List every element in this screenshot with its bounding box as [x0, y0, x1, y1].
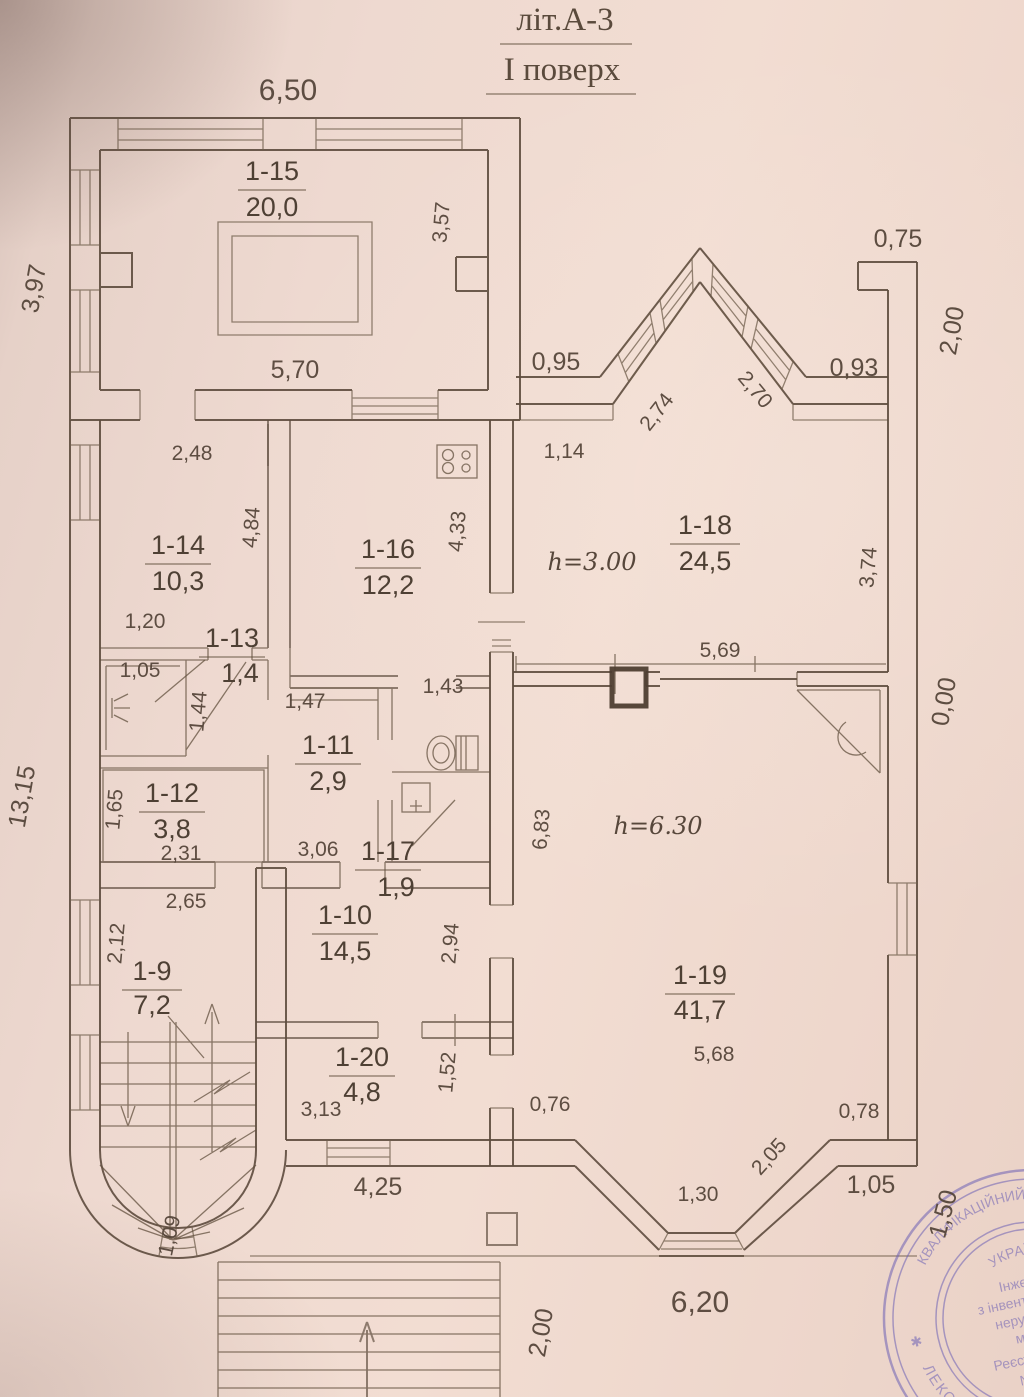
dim-r12-width: 2,31 — [161, 842, 202, 865]
toilet-icon — [427, 736, 478, 770]
dim-r14-width: 2,48 — [172, 442, 213, 465]
stairs-up-arrow — [205, 1004, 219, 1152]
room-1-17-leader — [412, 800, 455, 846]
room-1-20-area: 4,8 — [343, 1077, 381, 1107]
dim-ledge-right: 0,93 — [830, 354, 879, 382]
room-1-16-id: 1-16 — [361, 534, 415, 564]
dim-stair-window: 1,09 — [154, 1213, 185, 1258]
room-1-15-area: 20,0 — [246, 192, 299, 222]
room-1-12-id: 1-12 — [145, 778, 199, 808]
room-1-17-area: 1,9 — [377, 872, 415, 902]
dim-parapet: 0,75 — [874, 225, 923, 253]
dim-bay-low-diag: 2,05 — [747, 1134, 791, 1180]
wall-bottom-1-20 — [286, 1140, 513, 1166]
room-1-14-area: 10,3 — [152, 566, 205, 596]
room-1-13-area: 1,4 — [221, 658, 259, 688]
dim-r17-offset: 3,06 — [298, 838, 339, 861]
corner-triangle-marker — [797, 690, 880, 773]
dim-closet-inner: 1,05 — [120, 659, 161, 682]
dim-bay-low-window: 1,30 — [678, 1183, 719, 1206]
boiler-icon — [402, 783, 430, 812]
dim-left-total: 13,15 — [3, 763, 41, 829]
room-1-14-id: 1-14 — [151, 530, 205, 560]
dim-lobby-width: 2,65 — [166, 890, 207, 913]
room-1-9-id: 1-9 — [132, 956, 171, 986]
dim-bottom-width: 6,20 — [671, 1286, 729, 1319]
room-1-16-area: 12,2 — [362, 570, 415, 600]
room-1-9-area: 7,2 — [133, 990, 171, 1020]
dim-r19-left: 6,83 — [528, 808, 554, 851]
wall-right-exterior — [888, 262, 917, 1140]
dim-level-zero: 0,00 — [926, 675, 962, 728]
dim-left-upper: 3,97 — [16, 262, 52, 315]
dim-top-width: 6,50 — [259, 74, 317, 107]
dim-lobby-depth: 2,12 — [103, 922, 129, 965]
dim-right-lower: 1,50 — [923, 1187, 963, 1241]
dim-r12-depth: 1,65 — [101, 788, 127, 831]
dim-bottom-wall: 4,25 — [354, 1173, 403, 1201]
dim-r14-depth: 4,84 — [238, 506, 265, 549]
stamp-star-left: ✱ — [909, 1333, 924, 1351]
column-marker — [612, 669, 646, 706]
room-1-18-height: h=3.00 — [547, 548, 636, 576]
sink-icon — [112, 694, 130, 722]
dim-r16-bottom: 1,43 — [423, 675, 464, 698]
plan-title-line2: І поверх — [504, 52, 621, 88]
dim-bay-low-right: 0,78 — [839, 1100, 880, 1123]
dim-ledge-left: 0,95 — [532, 348, 581, 376]
dim-bay-low-left: 0,76 — [530, 1093, 571, 1116]
dim-r18-right: 3,74 — [855, 546, 882, 589]
dim-r10-right: 2,94 — [437, 922, 464, 965]
room-1-20-id: 1-20 — [335, 1042, 389, 1072]
walls-top-bay — [513, 248, 917, 420]
wall-central — [478, 420, 525, 1166]
dim-r19-width: 5,68 — [694, 1043, 735, 1066]
room-1-10-id: 1-10 — [318, 900, 372, 930]
room-1-19-id: 1-19 — [673, 960, 727, 990]
room-1-19-area: 41,7 — [674, 995, 727, 1025]
stove-icon — [437, 445, 477, 478]
floor-plan: літ.А-3 І поверх — [0, 0, 1024, 1397]
dim-bay-low-offset: 1,05 — [847, 1171, 896, 1199]
room-1-9-leader — [168, 1016, 204, 1058]
room-1-11-id: 1-11 — [302, 730, 354, 760]
room-1-10-area: 14,5 — [319, 936, 372, 966]
room-1-17-id: 1-17 — [361, 836, 415, 866]
title-block: літ.А-3 І поверх — [486, 2, 636, 94]
dim-r16-depth: 4,33 — [444, 510, 470, 553]
room-1-13-id: 1-13 — [205, 623, 259, 653]
entrance-arrow — [360, 1322, 374, 1397]
stamp-line-2: Інженер — [997, 1269, 1024, 1296]
wall-divider-hall — [513, 654, 888, 773]
dim-r11-width: 1,47 — [285, 690, 326, 713]
dim-r15-depth: 3,57 — [428, 201, 454, 244]
room-labels: 1-15 20,0 1-14 10,3 1-16 12,2 1-13 1,4 1… — [122, 156, 740, 1107]
room-1-19-height: h=6.30 — [613, 812, 702, 840]
room-1-18-area: 24,5 — [679, 546, 732, 576]
dim-r20-width: 3,13 — [301, 1098, 342, 1121]
dim-divider-width: 5,69 — [700, 639, 741, 662]
fixtures — [112, 445, 478, 812]
dim-porch-depth: 2,00 — [523, 1306, 559, 1359]
porch-steps — [218, 1213, 517, 1397]
room-1-15-id: 1-15 — [245, 156, 299, 186]
room-1-12-area: 3,8 — [153, 814, 191, 844]
dim-r20-right: 1,52 — [434, 1051, 460, 1094]
porch-column — [487, 1213, 517, 1245]
room-1-11-area: 2,9 — [309, 766, 347, 796]
dim-r13-depth: 1,44 — [185, 690, 212, 733]
stamp-country-text: УКРАЇНА — [984, 1236, 1024, 1272]
dim-closet-width: 1,20 — [125, 610, 166, 633]
stairs-down-arrow — [121, 1032, 135, 1126]
dim-hall-top: 1,14 — [544, 440, 585, 463]
room-1-18-id: 1-18 — [678, 510, 732, 540]
plan-title-line1: літ.А-3 — [516, 2, 613, 38]
dim-right-upper: 2,00 — [934, 304, 970, 357]
dim-bay-left-diag: 2,74 — [635, 389, 678, 436]
dim-r15-width: 5,70 — [271, 356, 320, 384]
